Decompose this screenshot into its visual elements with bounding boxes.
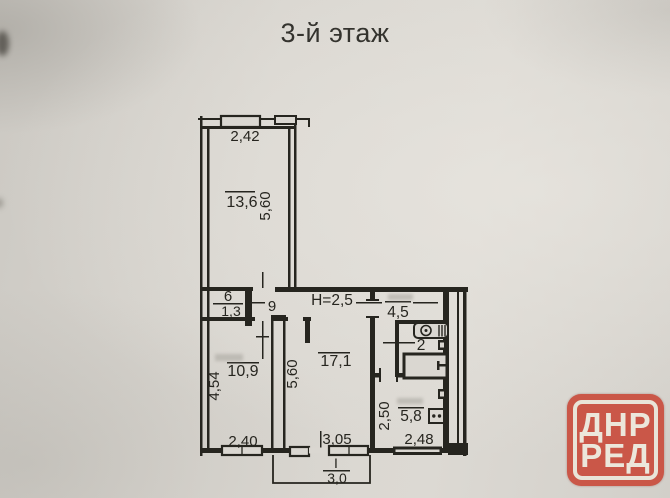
window-icon	[275, 116, 296, 124]
window-icon	[221, 116, 260, 127]
closet-door-icon	[245, 290, 252, 326]
bathroom-area-label: 2	[417, 337, 426, 354]
corridor-label: 9	[268, 298, 276, 315]
window-icon	[290, 447, 309, 456]
door-icon	[438, 389, 448, 399]
room-top-area-label: 13,6	[226, 194, 257, 211]
dim-kitchen-width: 2,48	[404, 431, 433, 448]
dim-room-top-depth: 5,60	[257, 191, 274, 220]
closet-area-label: 1,3	[221, 303, 241, 319]
balcony-number-label: I	[334, 455, 338, 471]
dim-room-top-width: 2,42	[230, 128, 259, 145]
balcony-door-gap	[309, 448, 329, 454]
room-left-area-label: 10,9	[227, 363, 258, 380]
watermark-stamp-border: ДНР РЕД	[573, 400, 658, 480]
kitchen-area-label: 5,8	[400, 408, 422, 425]
dim-kitchen-depth: 2,50	[376, 401, 393, 430]
dim-room-left-depth: 4,54	[206, 371, 223, 400]
watermark-stamp: ДНР РЕД	[567, 394, 664, 486]
sink-icon	[414, 323, 448, 338]
stamp-line1: ДНР	[579, 409, 651, 440]
stove-icon	[429, 409, 444, 423]
dim-room-main-depth: 5,60	[284, 359, 301, 388]
dim-balcony-width: 3,0	[327, 470, 347, 486]
dim-room-main-width: 3,05	[322, 431, 351, 448]
ceiling-height-label: Н=2,5	[311, 292, 353, 309]
scanned-floorplan-page: 3-й этаж	[0, 0, 670, 498]
room-main-area-label: 17,1	[320, 353, 351, 370]
door-icon	[438, 340, 448, 350]
dim-room-left-width: 2,40	[228, 433, 257, 450]
stamp-line2: РЕД	[580, 440, 651, 471]
hallway-area-label: 4,5	[387, 304, 409, 321]
balcony-outline	[273, 455, 370, 483]
bathtub-icon	[404, 354, 447, 378]
